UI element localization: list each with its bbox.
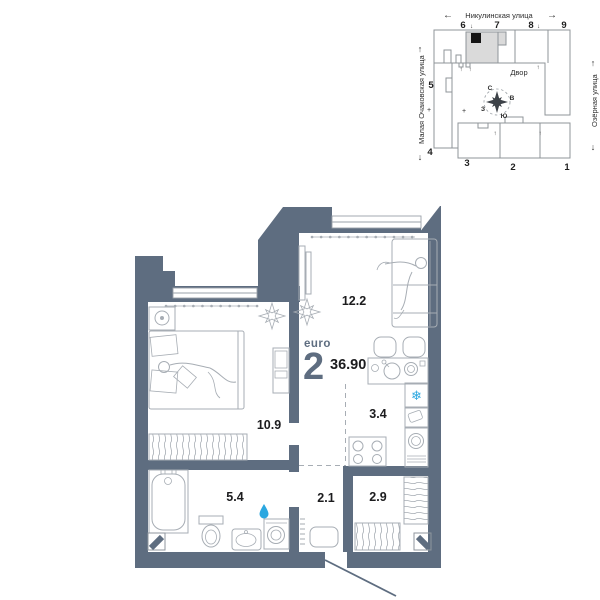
bar-stool — [374, 337, 425, 357]
compass-east: В — [510, 95, 515, 102]
washing-machine — [264, 519, 289, 549]
svg-text:7: 7 — [494, 20, 499, 31]
svg-text:6: 6 — [460, 20, 465, 31]
apartment-summary: euro 2 36.90 — [303, 338, 366, 388]
apartment-total-area: 36.90 — [330, 357, 366, 373]
room-label-bathroom: 5.4 — [226, 490, 243, 504]
street-right-arrow-up: ↑ — [591, 58, 596, 68]
bathtub — [149, 470, 188, 533]
stove — [349, 437, 386, 466]
svg-text:+: + — [462, 108, 466, 115]
svg-text:+: + — [427, 107, 431, 114]
street-left-arrow-up: ↑ — [418, 44, 423, 54]
room-label-bedroom: 10.9 — [257, 418, 281, 432]
svg-text:↓: ↓ — [470, 24, 473, 30]
person-on-sofa — [377, 258, 427, 319]
street-top-arrow-right: → — [547, 10, 557, 21]
svg-text:↑: ↑ — [460, 67, 463, 73]
snowflake-icon: ❄ — [411, 388, 422, 403]
bathroom-door-ticks — [300, 519, 305, 544]
unit-location-marker — [471, 33, 481, 43]
street-left-label: Малая Очаковская улица — [417, 54, 426, 144]
compass-rose: С В З Ю — [481, 85, 515, 120]
tv-unit — [299, 246, 311, 300]
svg-text:↑: ↑ — [494, 131, 497, 137]
room-label-wardrobe: 2.9 — [369, 490, 386, 504]
svg-text:5: 5 — [428, 80, 434, 91]
compass-south: Ю — [501, 113, 508, 120]
bedroom-wardrobe — [149, 434, 247, 460]
bed — [149, 331, 244, 409]
svg-text:1: 1 — [564, 162, 570, 173]
svg-text:3: 3 — [464, 158, 469, 169]
site-building-outline — [434, 30, 570, 158]
kitchen-zone-boundary — [299, 384, 346, 466]
oven — [405, 428, 428, 467]
svg-text:↓: ↓ — [537, 24, 540, 30]
street-right-arrow-down: ↓ — [591, 142, 596, 152]
svg-text:9: 9 — [561, 20, 566, 31]
svg-text:4: 4 — [427, 147, 433, 158]
svg-text:8: 8 — [528, 20, 533, 31]
room-label-hall: 2.1 — [317, 491, 334, 505]
svg-text:↑: ↑ — [537, 65, 540, 71]
street-right-label: Озёрная улица — [590, 73, 599, 127]
apartment-rooms-count: 2 — [303, 346, 324, 388]
floorplan-canvas: Никулинская улица ← → Малая Очаковская у… — [0, 0, 600, 600]
courtyard-label: Двор — [510, 68, 527, 77]
apartment-plan: ❄ — [135, 206, 441, 596]
walls — [135, 206, 441, 568]
vent-shaft-left — [148, 533, 165, 550]
bedroom-window — [166, 288, 258, 306]
compass-north: С — [488, 85, 493, 92]
toilet — [199, 516, 223, 547]
desk — [273, 348, 289, 393]
site-highlighted-section — [466, 32, 506, 63]
street-left-arrow-down: ↓ — [418, 152, 423, 162]
water-drop-icon — [260, 504, 269, 519]
room-label-kitchen: 3.4 — [369, 407, 386, 421]
kitchen-cabinet — [405, 408, 428, 427]
svg-text:↑: ↑ — [539, 131, 542, 137]
site-plan: Никулинская улица ← → Малая Очаковская у… — [417, 10, 599, 173]
room-label-living: 12.2 — [342, 294, 366, 308]
speaker-unit — [149, 307, 175, 330]
compass-west: З — [481, 106, 485, 113]
kitchen-counter — [368, 358, 428, 384]
street-top-arrow-left: ← — [443, 10, 453, 21]
floorplan-page: Никулинская улица ← → Малая Очаковская у… — [0, 0, 600, 600]
fridge: ❄ — [405, 383, 428, 407]
doormat — [310, 527, 338, 547]
street-top-label: Никулинская улица — [465, 11, 533, 20]
plant-bedroom — [259, 303, 285, 329]
bathroom-sink — [232, 529, 261, 550]
svg-text:↑: ↑ — [469, 67, 472, 73]
svg-text:2: 2 — [510, 162, 515, 173]
